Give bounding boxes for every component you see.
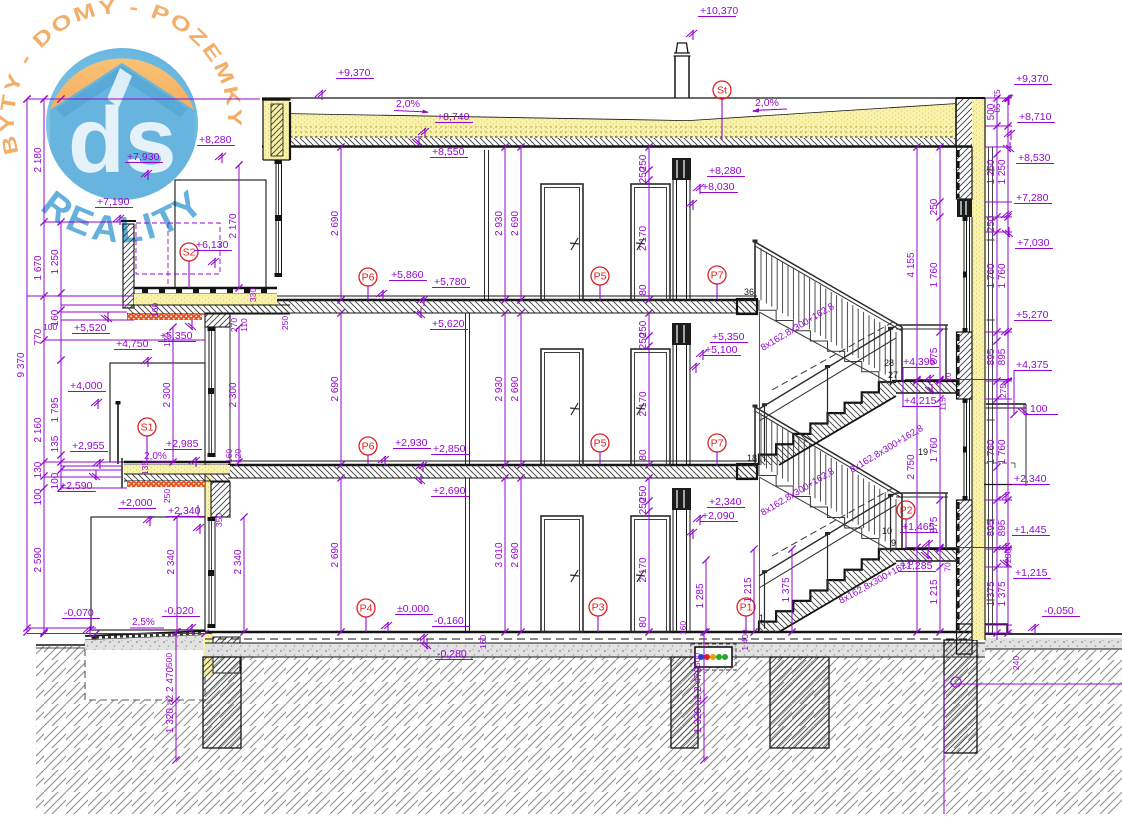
svg-text:+8,530: +8,530: [1018, 152, 1051, 164]
svg-text:1 250: 1 250: [997, 159, 1008, 184]
svg-text:2 690: 2 690: [330, 211, 341, 236]
svg-text:330: 330: [248, 288, 258, 302]
svg-text:1 215: 1 215: [929, 579, 940, 604]
svg-text:+2,930: +2,930: [395, 437, 428, 449]
svg-text:+9,370: +9,370: [338, 67, 371, 79]
svg-text:+2,340: +2,340: [1014, 473, 1047, 485]
svg-text:+2,000: +2,000: [120, 497, 153, 509]
svg-text:160: 160: [150, 303, 160, 317]
svg-text:-0,070: -0,070: [64, 607, 94, 619]
svg-text:2 170: 2 170: [228, 213, 239, 238]
svg-text:36: 36: [744, 287, 754, 297]
svg-text:+5,620: +5,620: [432, 318, 465, 330]
svg-text:1 375: 1 375: [781, 577, 792, 602]
svg-text:+8,740: +8,740: [437, 111, 470, 123]
svg-text:P2: P2: [900, 505, 913, 517]
svg-text:270: 270: [229, 318, 239, 332]
svg-text:P4: P4: [360, 603, 373, 615]
svg-text:-0,160: -0,160: [434, 615, 464, 627]
svg-text:2 160: 2 160: [33, 417, 44, 442]
svg-text:2 930: 2 930: [494, 376, 505, 401]
svg-text:100: 100: [1030, 403, 1048, 415]
svg-text:2 690: 2 690: [510, 211, 521, 236]
svg-text:+2,340: +2,340: [168, 505, 201, 517]
svg-text:1 760: 1 760: [929, 262, 940, 287]
svg-text:+4,375: +4,375: [1016, 359, 1049, 371]
svg-text:+2,955: +2,955: [72, 440, 105, 452]
svg-text:P6: P6: [362, 441, 375, 453]
svg-text:500: 500: [692, 653, 702, 667]
svg-text:895: 895: [997, 519, 1008, 536]
svg-text:+2,690: +2,690: [433, 485, 466, 497]
svg-text:8x162,8x300+162,8: 8x162,8x300+162,8: [759, 301, 836, 354]
svg-text:2 300: 2 300: [162, 382, 173, 407]
svg-text:250: 250: [638, 154, 649, 171]
svg-text:P6: P6: [362, 272, 375, 284]
svg-text:+7,280: +7,280: [1016, 192, 1049, 204]
svg-text:135: 135: [140, 461, 150, 475]
svg-text:500: 500: [164, 653, 174, 667]
svg-text:1 250: 1 250: [50, 249, 61, 274]
svg-text:2,5%: 2,5%: [132, 617, 155, 628]
svg-text:1 375: 1 375: [986, 581, 997, 606]
svg-text:80: 80: [638, 449, 649, 461]
svg-text:P5: P5: [594, 271, 607, 283]
svg-text:+5,780: +5,780: [434, 276, 467, 288]
svg-text:±0,000: ±0,000: [397, 603, 429, 615]
svg-text:+1,285: +1,285: [900, 560, 933, 572]
svg-text:2 750: 2 750: [906, 454, 917, 479]
svg-text:P3: P3: [592, 602, 605, 614]
svg-text:1 215: 1 215: [743, 577, 754, 602]
svg-text:+4,215: +4,215: [904, 395, 937, 407]
svg-text:2 930: 2 930: [494, 211, 505, 236]
svg-text:250: 250: [280, 316, 290, 330]
svg-text:2,0%: 2,0%: [755, 97, 779, 109]
svg-text:8x162,8x300+162,8: 8x162,8x300+162,8: [759, 466, 836, 519]
svg-text:-0,280: -0,280: [437, 648, 467, 660]
svg-text:+10,370: +10,370: [700, 5, 738, 17]
svg-text:1 760: 1 760: [986, 439, 997, 464]
svg-text:+2,590: +2,590: [60, 480, 93, 492]
svg-text:1 320 až 2 470: 1 320 až 2 470: [693, 666, 704, 733]
svg-text:9: 9: [891, 538, 896, 548]
svg-text:2 170: 2 170: [638, 226, 649, 251]
svg-text:875: 875: [929, 516, 940, 533]
svg-text:+5,100: +5,100: [705, 344, 738, 356]
svg-text:+5,270: +5,270: [1016, 309, 1049, 321]
svg-text:+2,850: +2,850: [433, 443, 466, 455]
svg-text:+8,550: +8,550: [432, 146, 465, 158]
svg-text:+6,130: +6,130: [196, 239, 229, 251]
svg-text:S2: S2: [183, 247, 196, 259]
svg-text:250: 250: [638, 485, 649, 502]
svg-text:875: 875: [929, 347, 940, 364]
svg-text:1 375: 1 375: [997, 581, 1008, 606]
svg-text:-0,050: -0,050: [1044, 605, 1074, 617]
svg-text:350: 350: [214, 513, 224, 527]
svg-text:+8,030: +8,030: [702, 181, 735, 193]
svg-text:2 690: 2 690: [330, 376, 341, 401]
svg-text:+2,985: +2,985: [166, 438, 199, 450]
svg-text:70: 70: [943, 562, 953, 572]
svg-text:P7: P7: [711, 270, 724, 282]
svg-text:2 170: 2 170: [638, 391, 649, 416]
svg-text:240: 240: [1011, 656, 1021, 670]
svg-text:130: 130: [33, 461, 44, 478]
svg-text:19: 19: [918, 447, 928, 457]
svg-text:1 400: 1 400: [740, 629, 750, 651]
svg-text:2 590: 2 590: [33, 547, 44, 572]
svg-text:S1: S1: [141, 422, 154, 434]
svg-text:27: 27: [888, 370, 898, 380]
svg-text:100: 100: [33, 488, 44, 505]
svg-text:+4,000: +4,000: [70, 380, 103, 392]
svg-text:10: 10: [882, 526, 892, 536]
svg-text:+2,340: +2,340: [709, 496, 742, 508]
svg-text:170: 170: [162, 333, 172, 347]
svg-text:1 760: 1 760: [997, 439, 1008, 464]
svg-text:85: 85: [993, 103, 1002, 112]
svg-text:+9,370: +9,370: [1016, 73, 1049, 85]
svg-text:4 155: 4 155: [906, 252, 917, 277]
svg-text:+7,930: +7,930: [127, 151, 160, 163]
svg-text:28: 28: [884, 358, 894, 368]
svg-text:18: 18: [747, 453, 757, 463]
svg-text:250: 250: [638, 320, 649, 337]
svg-text:895: 895: [986, 348, 997, 365]
svg-text:1 285: 1 285: [695, 583, 706, 608]
svg-text:115: 115: [938, 397, 948, 411]
svg-text:2 180: 2 180: [33, 147, 44, 172]
svg-text:75: 75: [993, 89, 1002, 98]
svg-text:+1,445: +1,445: [1014, 524, 1047, 536]
svg-text:3 010: 3 010: [494, 542, 505, 567]
svg-text:ds: ds: [68, 88, 177, 192]
svg-text:2,0%: 2,0%: [396, 98, 420, 110]
svg-text:2,0%: 2,0%: [144, 451, 167, 462]
svg-text:1 760: 1 760: [986, 263, 997, 288]
svg-text:2 690: 2 690: [330, 542, 341, 567]
svg-text:895: 895: [997, 348, 1008, 365]
svg-text:+1,215: +1,215: [1015, 567, 1048, 579]
svg-text:St: St: [717, 85, 727, 97]
svg-text:-0,020: -0,020: [164, 605, 194, 617]
svg-text:2 340: 2 340: [233, 549, 244, 574]
svg-text:895: 895: [986, 519, 997, 536]
svg-text:110: 110: [239, 318, 249, 332]
svg-text:1 320 až 2 470: 1 320 až 2 470: [165, 666, 176, 733]
svg-text:+5,860: +5,860: [391, 269, 424, 281]
svg-text:+5,350: +5,350: [712, 331, 745, 343]
svg-text:2 300: 2 300: [228, 382, 239, 407]
svg-text:80: 80: [638, 616, 649, 628]
svg-text:1 760: 1 760: [929, 437, 940, 462]
svg-text:+4,750: +4,750: [116, 338, 149, 350]
svg-text:P7: P7: [711, 438, 724, 450]
svg-text:1: 1: [759, 613, 764, 623]
svg-text:+5,520: +5,520: [74, 322, 107, 334]
svg-text:1 670: 1 670: [33, 255, 44, 280]
svg-text:160: 160: [478, 635, 488, 649]
svg-text:100: 100: [43, 322, 57, 332]
svg-text:+8,280: +8,280: [199, 134, 232, 146]
svg-text:+8,280: +8,280: [709, 165, 742, 177]
svg-text:1 760: 1 760: [997, 263, 1008, 288]
svg-text:2 340: 2 340: [166, 549, 177, 574]
svg-text:P5: P5: [594, 438, 607, 450]
svg-text:275: 275: [998, 384, 1008, 398]
svg-text:250: 250: [162, 489, 172, 503]
svg-text:9 370: 9 370: [16, 352, 27, 377]
svg-text:250: 250: [986, 215, 997, 232]
svg-text:2 690: 2 690: [510, 376, 521, 401]
svg-text:160: 160: [678, 621, 688, 635]
svg-text:1 795: 1 795: [50, 397, 61, 422]
svg-text:20: 20: [944, 372, 953, 381]
svg-text:2 690: 2 690: [510, 542, 521, 567]
svg-text:135: 135: [50, 435, 61, 452]
svg-text:2 170: 2 170: [638, 557, 649, 582]
svg-text:80: 80: [638, 284, 649, 296]
svg-text:+2,090: +2,090: [702, 510, 735, 522]
svg-text:+7,190: +7,190: [97, 196, 130, 208]
svg-text:+7,030: +7,030: [1017, 237, 1050, 249]
svg-text:1 250: 1 250: [986, 159, 997, 184]
svg-text:250: 250: [929, 198, 940, 215]
svg-text:120: 120: [233, 449, 243, 463]
svg-text:+8,710: +8,710: [1019, 111, 1052, 123]
